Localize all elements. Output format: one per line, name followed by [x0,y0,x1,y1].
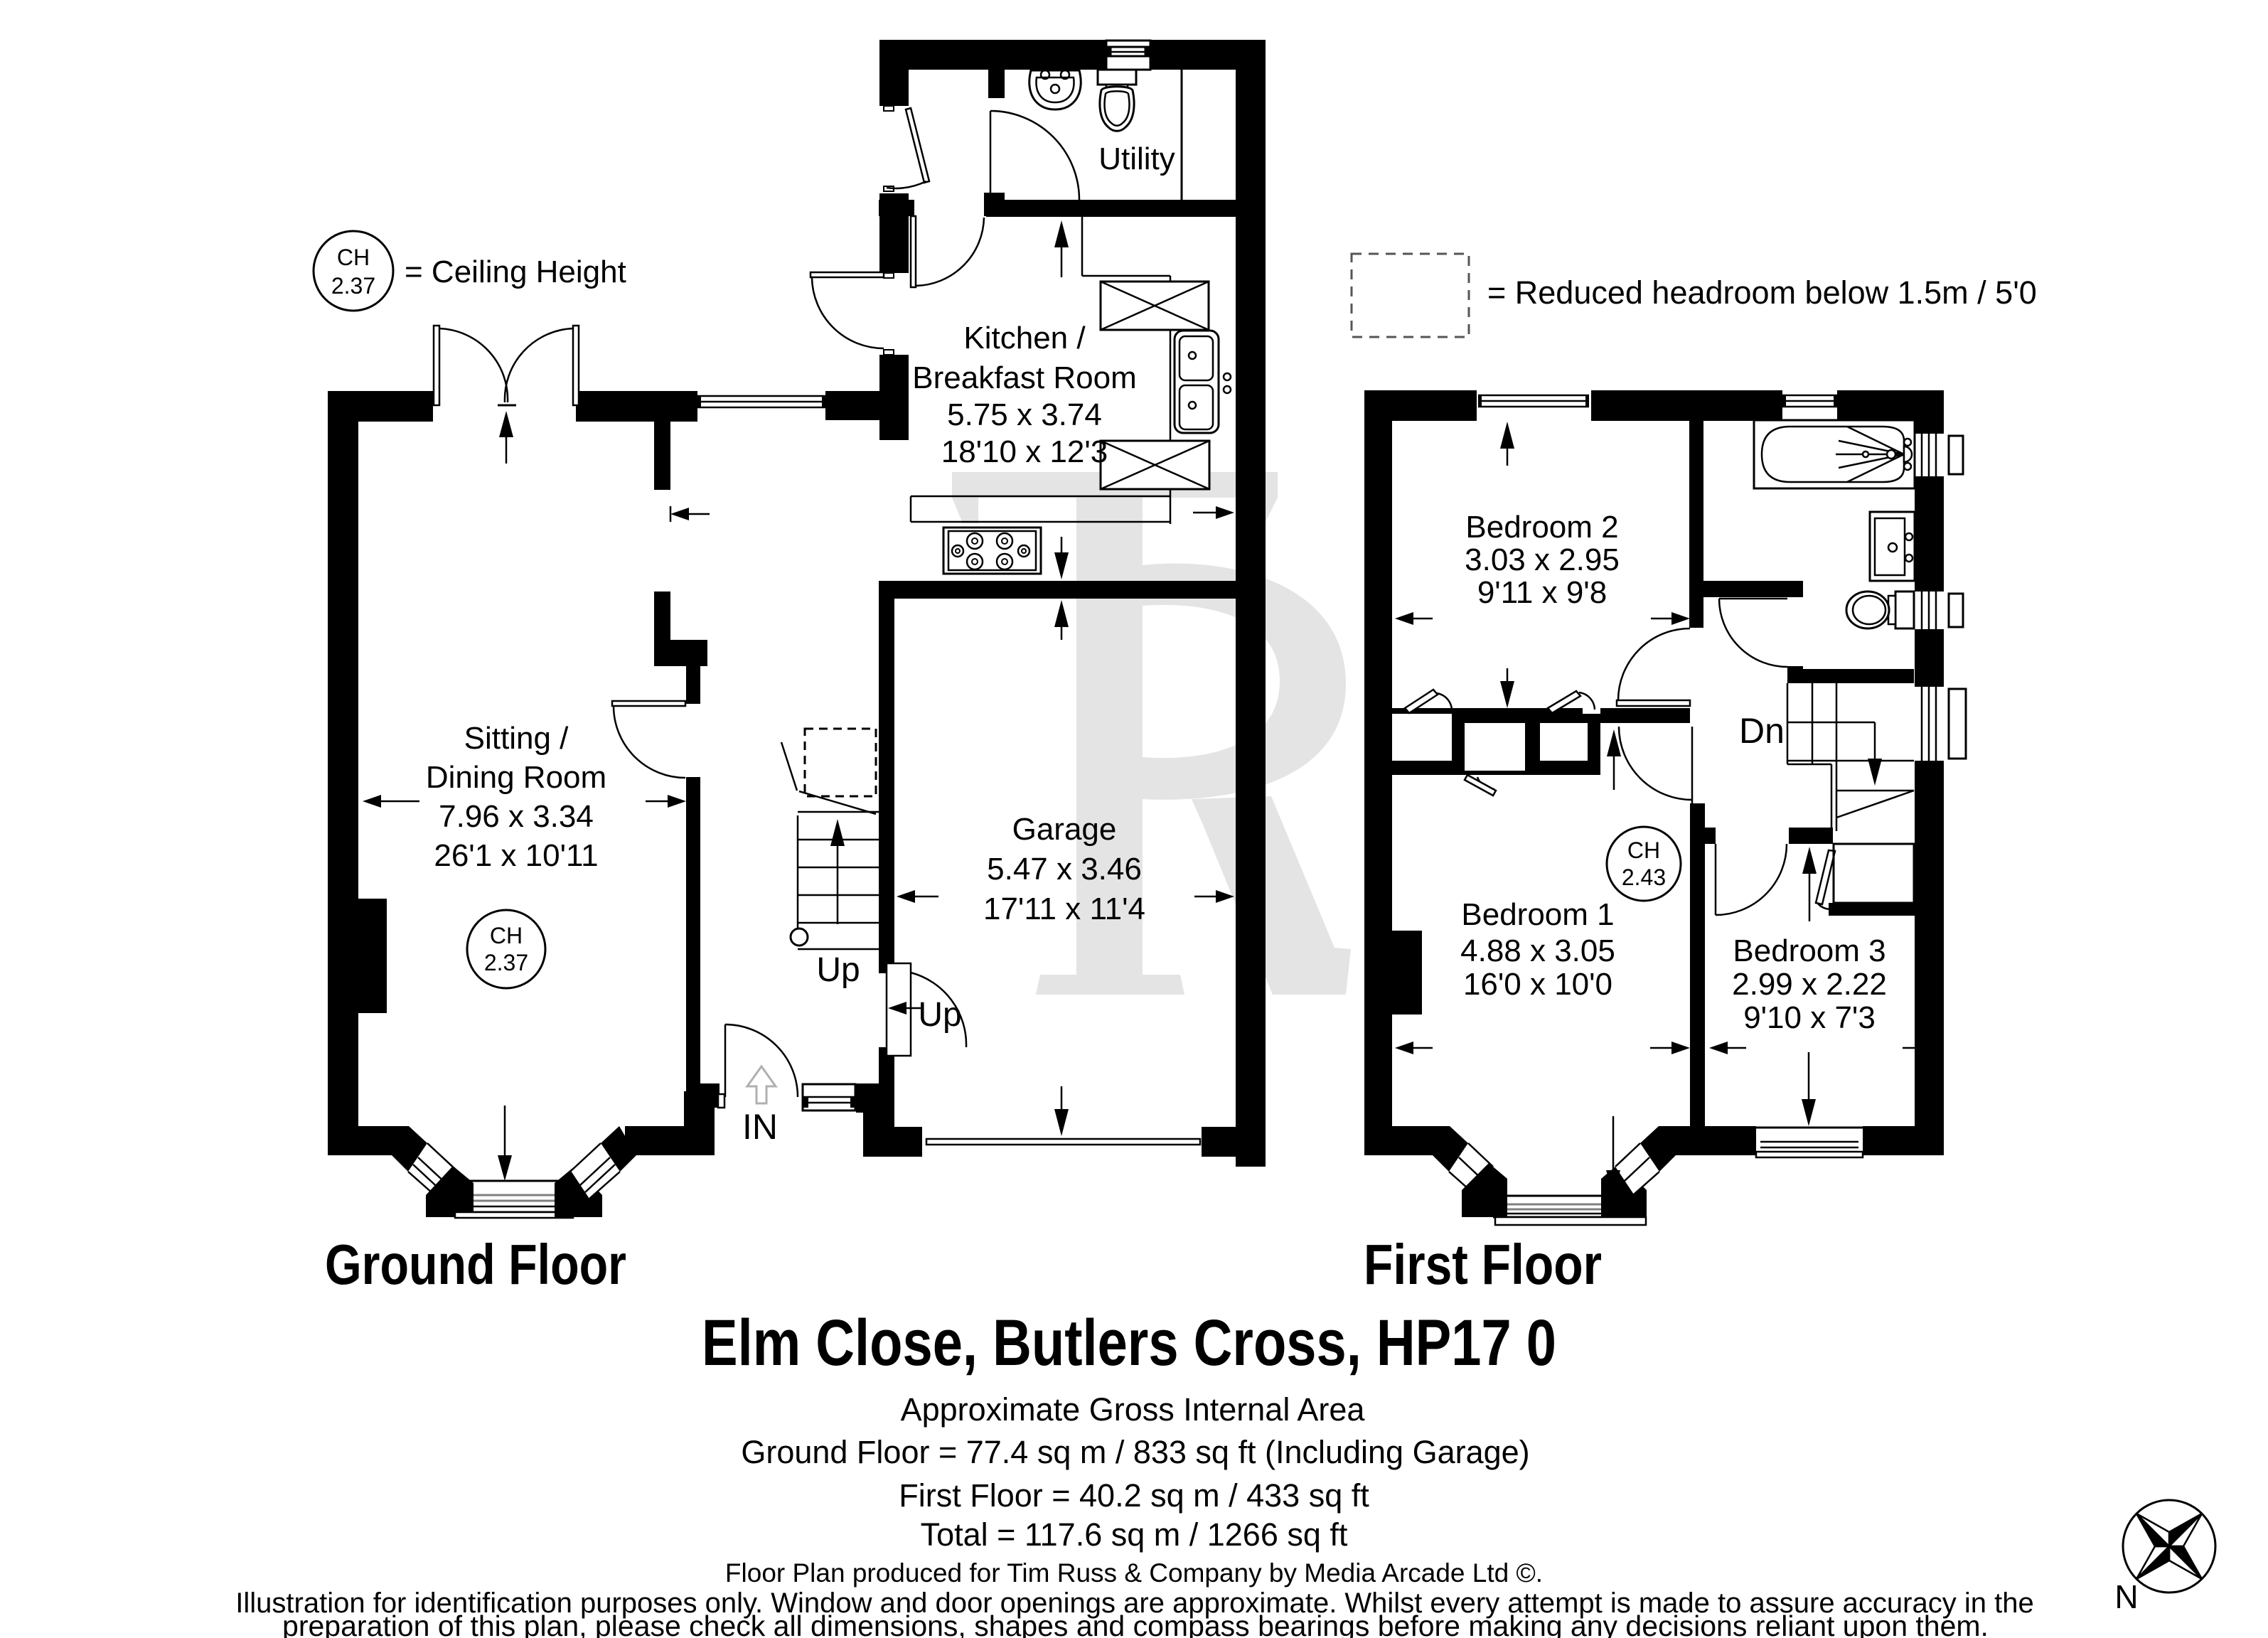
svg-text:Breakfast Room: Breakfast Room [912,360,1136,395]
svg-text:2.99 x 2.22: 2.99 x 2.22 [1732,967,1887,1002]
svg-text:4.88 x 3.05: 4.88 x 3.05 [1460,933,1615,968]
svg-text:17'11 x 11'4: 17'11 x 11'4 [983,892,1145,926]
svg-text:2.43: 2.43 [1622,864,1666,890]
svg-text:5.75 x 3.74: 5.75 x 3.74 [947,397,1102,432]
svg-text:Garage: Garage [1012,812,1117,847]
svg-text:26'1 x 10'11: 26'1 x 10'11 [434,838,598,873]
svg-text:= Reduced headroom below 1.5m: = Reduced headroom below 1.5m / 5'0 [1487,274,2037,311]
svg-text:7.96 x 3.34: 7.96 x 3.34 [439,799,594,834]
svg-text:Up: Up [816,951,860,989]
svg-text:Total = 117.6 sq m / 1266 sq f: Total = 117.6 sq m / 1266 sq ft [921,1516,1348,1553]
svg-text:2.37: 2.37 [484,950,528,975]
svg-text:9'11 x 9'8: 9'11 x 9'8 [1477,575,1607,610]
svg-text:3.03 x 2.95: 3.03 x 2.95 [1465,542,1620,577]
svg-text:First Floor = 40.2 sq m / 433: First Floor = 40.2 sq m / 433 sq ft [899,1477,1369,1514]
svg-text:= Ceiling Height: = Ceiling Height [405,255,626,289]
svg-text:Bedroom 2: Bedroom 2 [1465,510,1618,545]
svg-text:9'10 x 7'3: 9'10 x 7'3 [1743,1000,1876,1035]
svg-text:N: N [2114,1578,2138,1615]
svg-text:Elm Close, Butlers Cross, HP17: Elm Close, Butlers Cross, HP17 0 [702,1307,1556,1379]
svg-text:2.37: 2.37 [331,273,375,299]
svg-text:Kitchen /: Kitchen / [963,321,1086,355]
svg-text:First Floor: First Floor [1364,1233,1602,1296]
svg-text:Ground Floor = 77.4 sq m / 833: Ground Floor = 77.4 sq m / 833 sq ft (In… [741,1434,1529,1470]
svg-text:IN: IN [742,1107,778,1147]
svg-text:CH: CH [1627,837,1660,863]
svg-text:Bedroom 1: Bedroom 1 [1461,897,1614,932]
svg-text:16'0 x 10'0: 16'0 x 10'0 [1463,967,1612,1002]
svg-text:CH: CH [337,245,370,270]
svg-text:preparation of this plan, plea: preparation of this plan, please check a… [282,1610,1989,1638]
svg-text:Sitting /: Sitting / [464,721,569,756]
svg-text:Utility: Utility [1098,141,1175,176]
svg-text:Approximate Gross Internal Are: Approximate Gross Internal Area [901,1391,1366,1428]
svg-text:Dn: Dn [1739,711,1785,751]
svg-text:Up: Up [918,996,961,1034]
svg-text:CH: CH [490,923,523,948]
svg-text:Floor Plan produced for Tim Ru: Floor Plan produced for Tim Russ & Compa… [725,1558,1543,1588]
svg-text:Dining Room: Dining Room [426,760,606,795]
svg-text:18'10 x 12'3: 18'10 x 12'3 [941,434,1108,469]
svg-text:5.47 x 3.46: 5.47 x 3.46 [987,852,1142,887]
svg-text:Bedroom 3: Bedroom 3 [1733,933,1885,968]
svg-text:Ground Floor: Ground Floor [325,1233,626,1296]
